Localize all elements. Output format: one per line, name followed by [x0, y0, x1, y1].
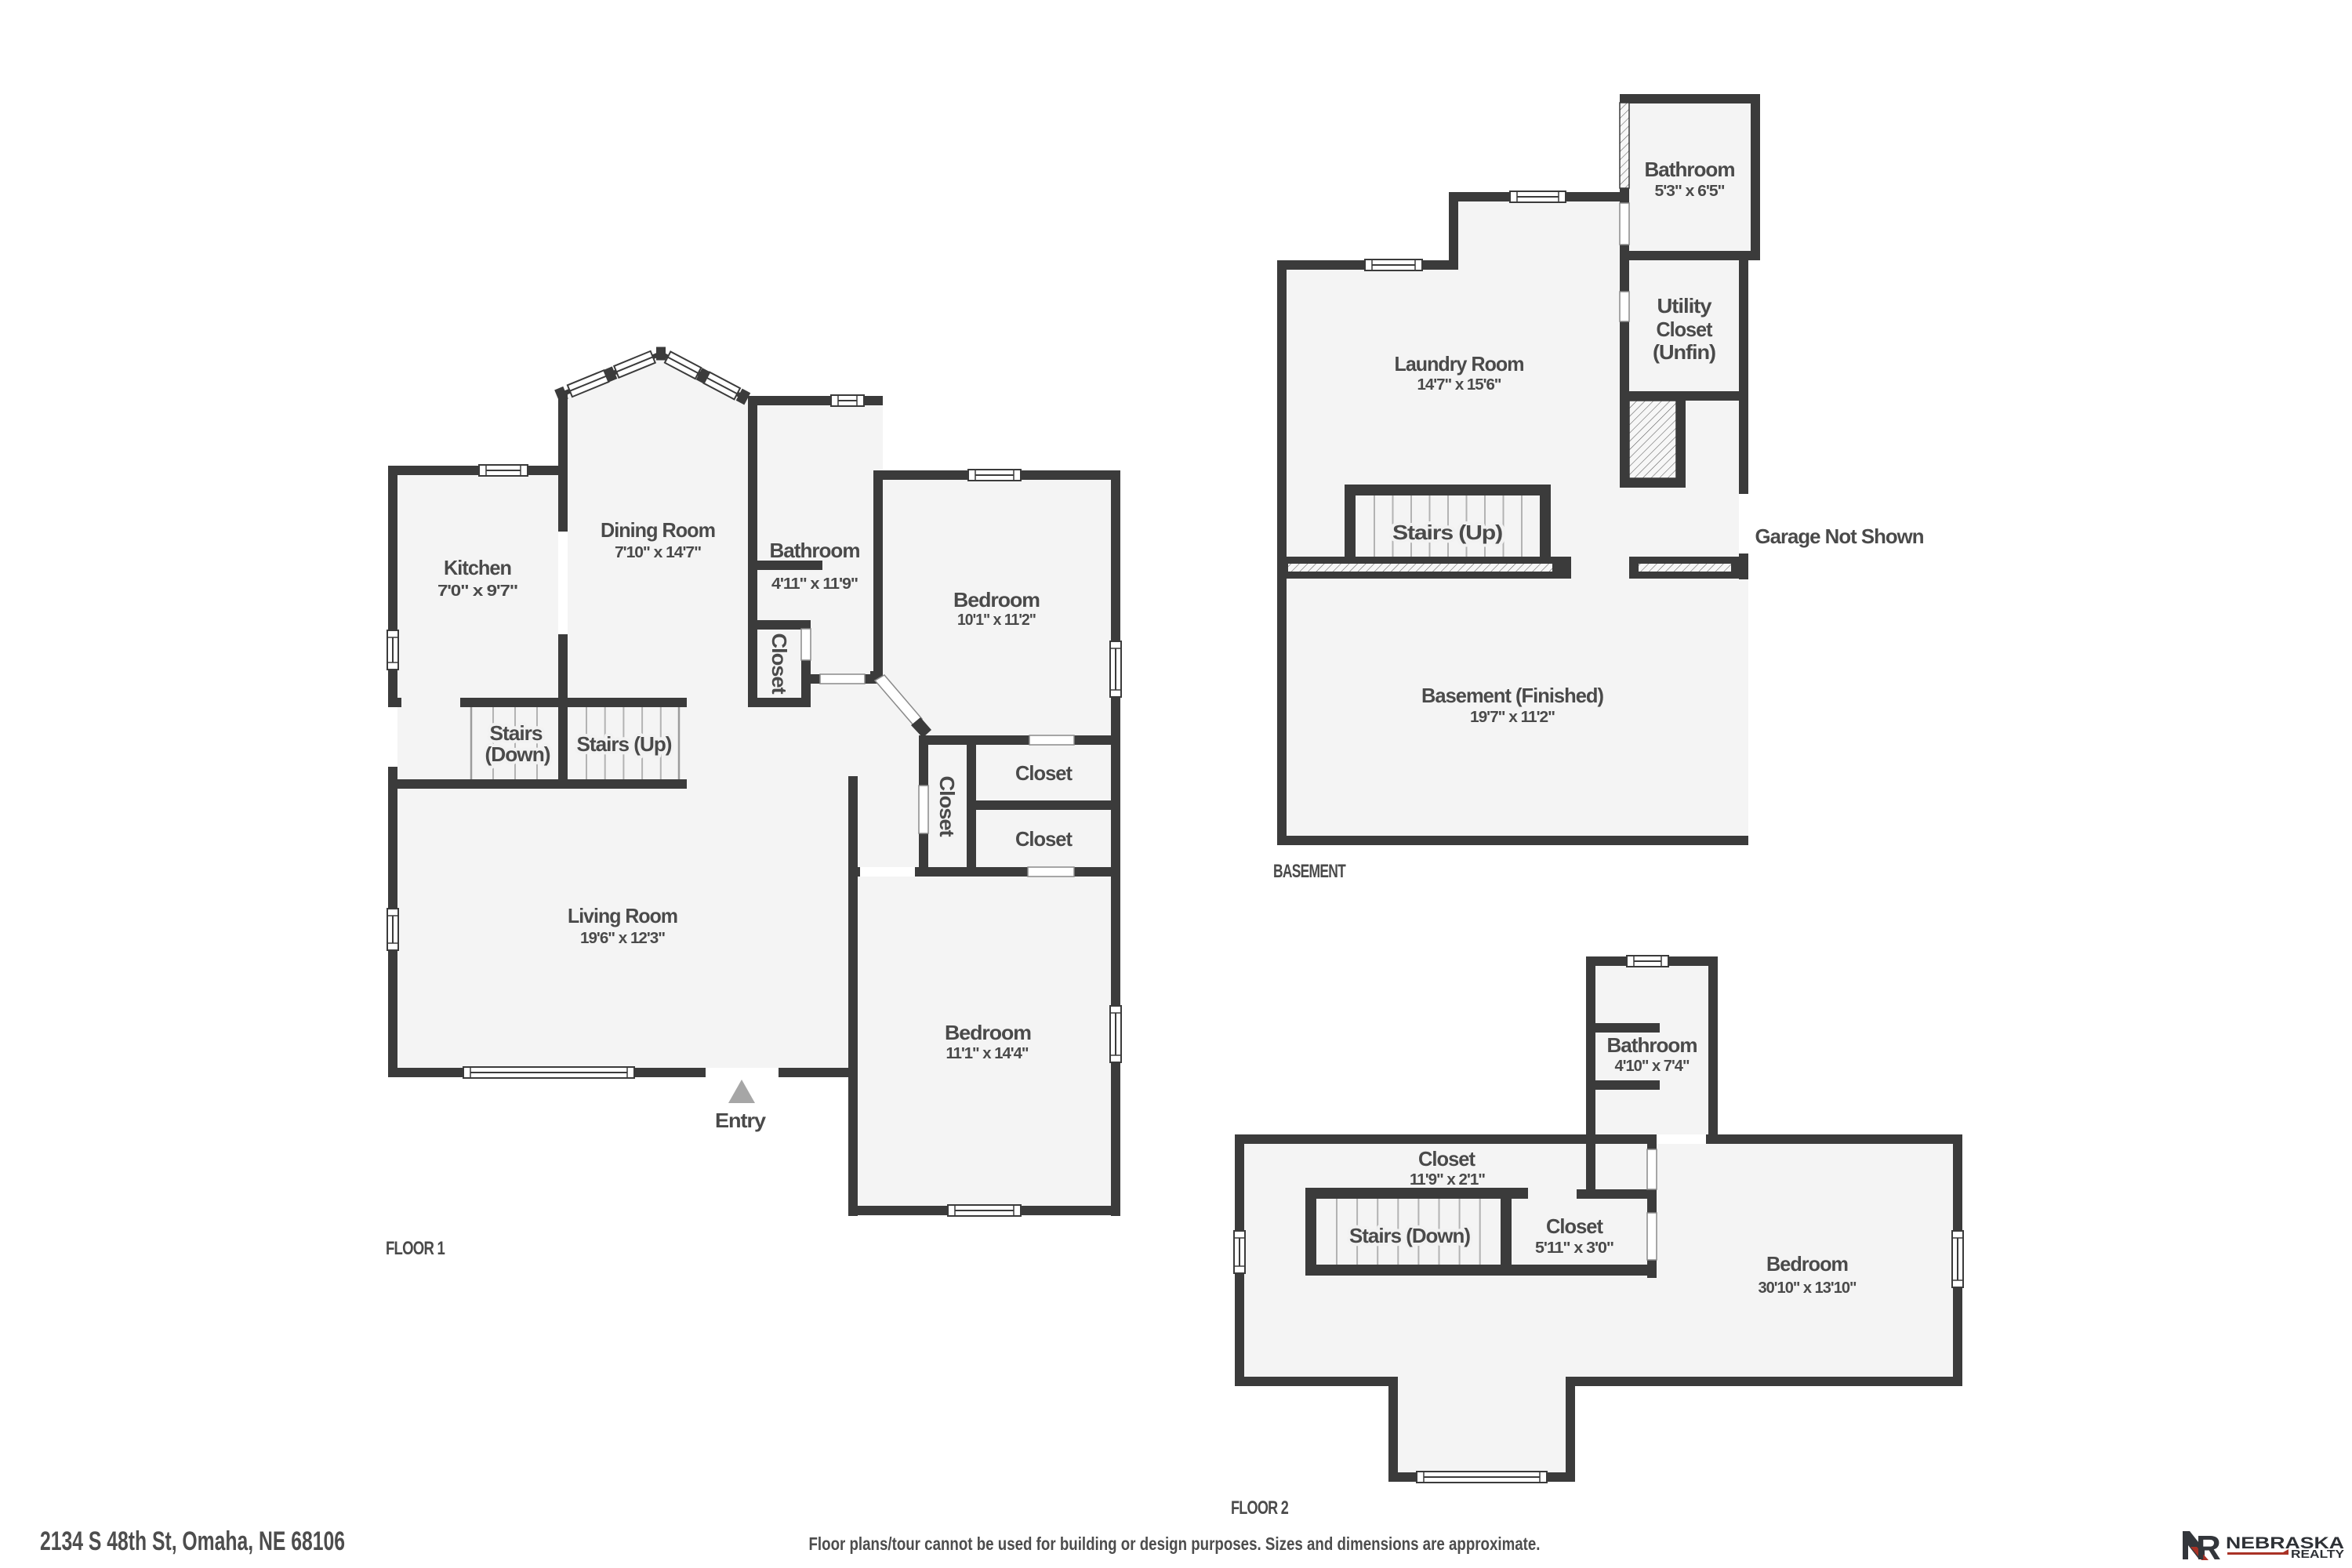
svg-text:Closet: Closet — [935, 776, 959, 837]
svg-text:Laundry Room: Laundry Room — [1395, 352, 1524, 376]
svg-text:Closet: Closet — [1418, 1147, 1475, 1171]
svg-text:Garage Not Shown: Garage Not Shown — [1755, 524, 1924, 548]
svg-text:Closet: Closet — [768, 633, 791, 695]
svg-text:Utility: Utility — [1657, 294, 1713, 318]
svg-text:7'10" x 14'7": 7'10" x 14'7" — [615, 544, 702, 561]
svg-text:10'1" x 11'2": 10'1" x 11'2" — [957, 612, 1036, 629]
svg-text:Living Room: Living Room — [568, 904, 677, 927]
svg-text:11'9" x 2'1": 11'9" x 2'1" — [1410, 1171, 1486, 1189]
svg-text:Closet: Closet — [1546, 1214, 1603, 1238]
svg-text:Closet: Closet — [1015, 761, 1073, 785]
svg-text:5'3" x 6'5": 5'3" x 6'5" — [1655, 183, 1726, 200]
svg-text:Stairs (Up): Stairs (Up) — [1392, 521, 1502, 544]
svg-text:(Unfin): (Unfin) — [1653, 340, 1715, 364]
svg-text:Basement (Finished): Basement (Finished) — [1421, 684, 1603, 707]
svg-text:Closet: Closet — [1657, 318, 1713, 341]
svg-text:REALTY: REALTY — [2291, 1548, 2344, 1561]
svg-text:19'7" x 11'2": 19'7" x 11'2" — [1470, 709, 1555, 726]
svg-text:11'1" x 14'4": 11'1" x 14'4" — [946, 1045, 1029, 1062]
svg-text:Bathroom: Bathroom — [1607, 1033, 1697, 1057]
svg-text:Bathroom: Bathroom — [770, 539, 860, 562]
svg-text:Bedroom: Bedroom — [953, 588, 1040, 612]
svg-text:R: R — [2196, 1529, 2221, 1567]
svg-text:FLOOR 1: FLOOR 1 — [386, 1238, 445, 1259]
svg-text:Kitchen: Kitchen — [444, 556, 511, 579]
svg-text:Bedroom: Bedroom — [945, 1021, 1031, 1044]
svg-text:2134 S 48th St, Omaha, NE 6810: 2134 S 48th St, Omaha, NE 68106 — [40, 1526, 345, 1556]
svg-text:5'11" x 3'0": 5'11" x 3'0" — [1535, 1240, 1614, 1257]
svg-text:BASEMENT: BASEMENT — [1273, 861, 1346, 882]
svg-text:Bathroom: Bathroom — [1645, 158, 1735, 181]
svg-text:Closet: Closet — [1015, 827, 1073, 851]
svg-text:(Down): (Down) — [485, 742, 550, 766]
svg-text:Stairs (Up): Stairs (Up) — [577, 732, 672, 756]
svg-text:7'0" x 9'7": 7'0" x 9'7" — [437, 583, 518, 600]
svg-text:Bedroom: Bedroom — [1766, 1252, 1848, 1276]
svg-text:Stairs (Down): Stairs (Down) — [1349, 1224, 1470, 1247]
svg-text:FLOOR 2: FLOOR 2 — [1231, 1497, 1288, 1519]
svg-text:30'10" x 13'10": 30'10" x 13'10" — [1759, 1279, 1857, 1297]
svg-text:14'7" x 15'6": 14'7" x 15'6" — [1417, 376, 1502, 394]
svg-text:Floor plans/tour cannot be use: Floor plans/tour cannot be used for buil… — [809, 1534, 1541, 1554]
svg-text:Entry: Entry — [715, 1109, 767, 1132]
svg-text:19'6" x 12'3": 19'6" x 12'3" — [580, 930, 666, 947]
svg-text:4'10" x 7'4": 4'10" x 7'4" — [1615, 1058, 1690, 1075]
svg-text:4'11" x 11'9": 4'11" x 11'9" — [771, 575, 858, 593]
svg-text:Dining Room: Dining Room — [601, 518, 715, 542]
svg-text:Stairs: Stairs — [490, 721, 543, 745]
